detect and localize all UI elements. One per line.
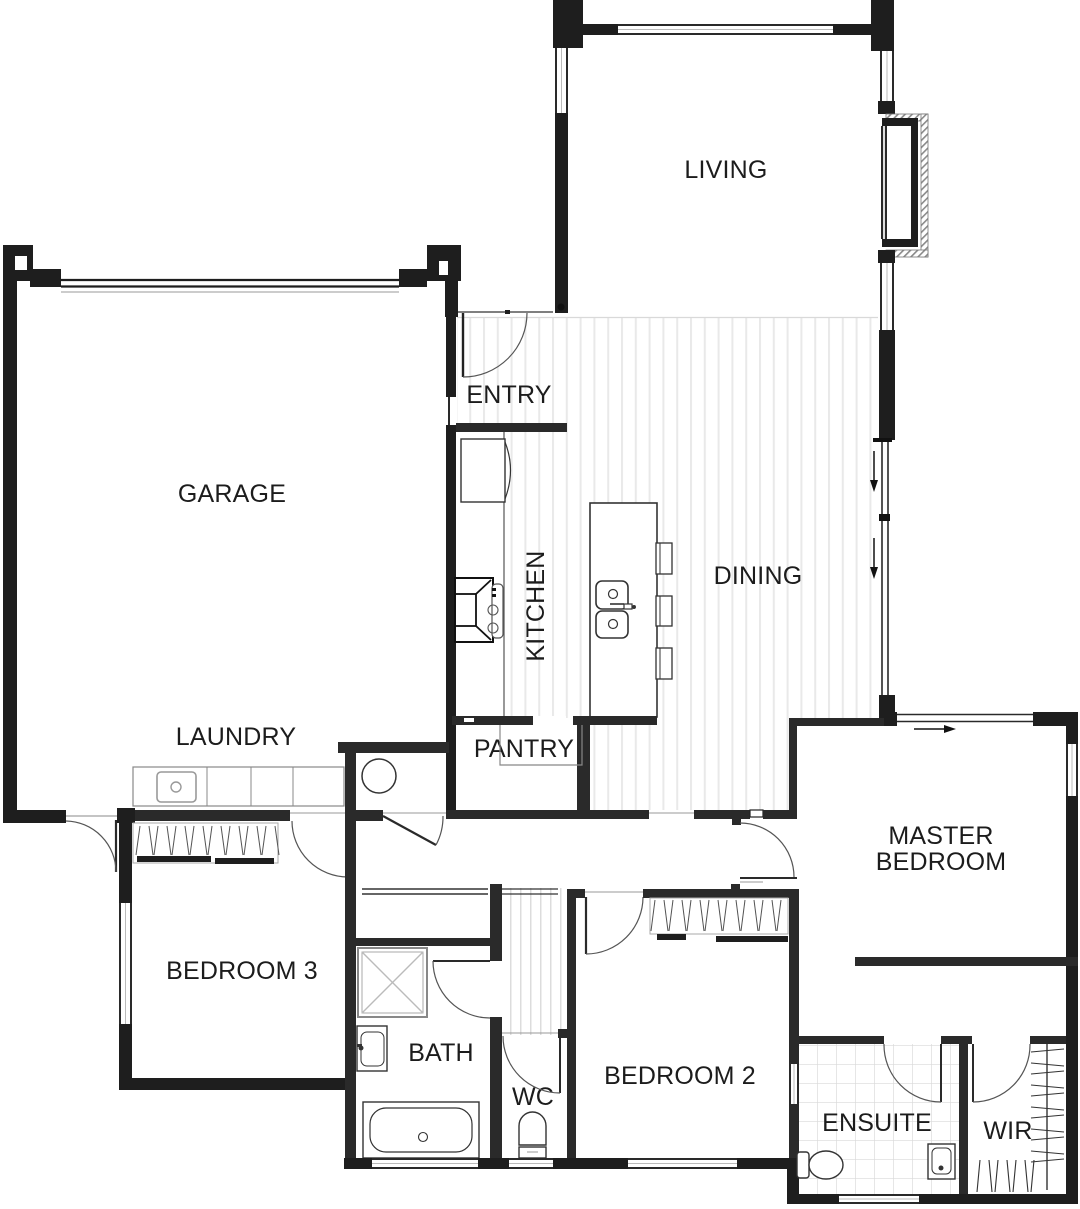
svg-text:BEDROOM 2: BEDROOM 2 xyxy=(604,1062,756,1090)
svg-text:BATH: BATH xyxy=(408,1039,474,1067)
svg-text:KITCHEN: KITCHEN xyxy=(522,550,550,661)
svg-text:PANTRY: PANTRY xyxy=(474,735,574,763)
svg-text:DINING: DINING xyxy=(714,562,803,590)
svg-text:ENSUITE: ENSUITE xyxy=(822,1109,932,1137)
svg-text:LAUNDRY: LAUNDRY xyxy=(176,723,297,751)
svg-text:WIR: WIR xyxy=(983,1117,1032,1145)
svg-text:LIVING: LIVING xyxy=(684,156,767,184)
svg-text:BEDROOM 3: BEDROOM 3 xyxy=(166,957,318,985)
svg-text:BEDROOM: BEDROOM xyxy=(876,848,1007,876)
svg-text:WC: WC xyxy=(512,1083,554,1111)
svg-text:MASTER: MASTER xyxy=(888,822,993,850)
svg-text:GARAGE: GARAGE xyxy=(178,480,286,508)
svg-text:ENTRY: ENTRY xyxy=(466,381,551,409)
